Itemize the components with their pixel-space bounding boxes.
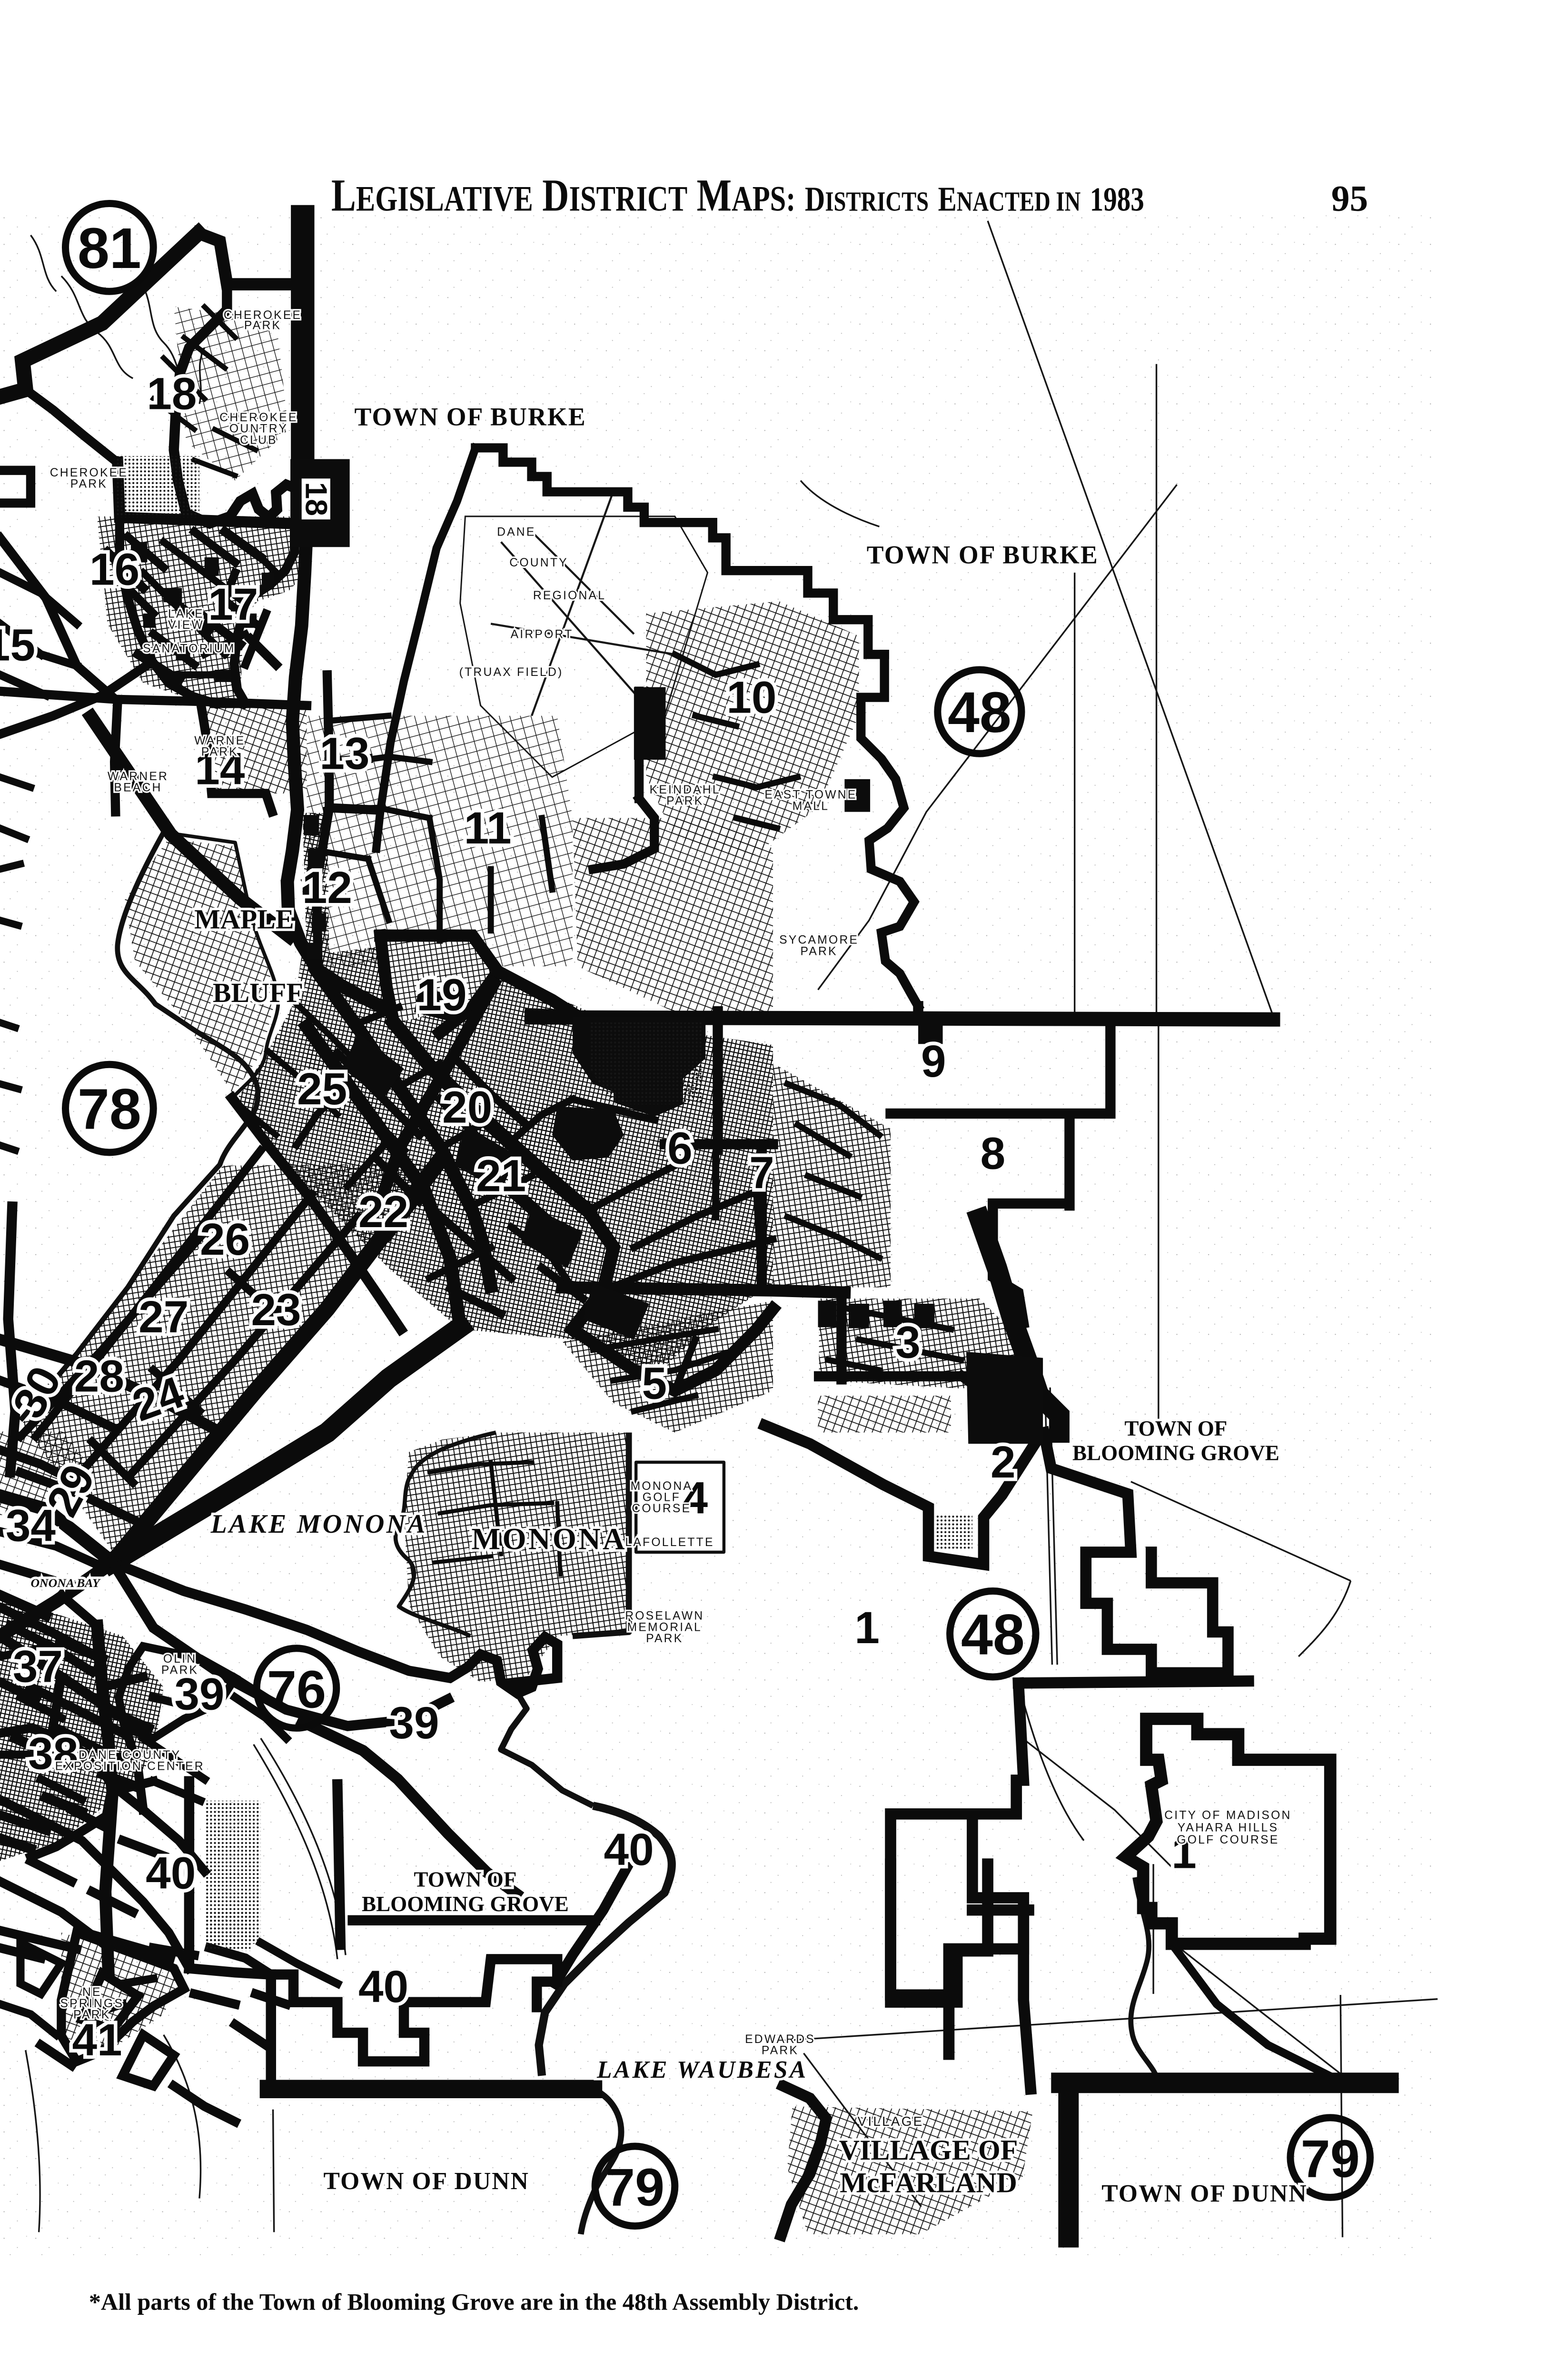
svg-text:TOWN OF BURKE: TOWN OF BURKE xyxy=(867,541,1099,569)
svg-text:MALL: MALL xyxy=(793,800,829,813)
svg-text:PARK: PARK xyxy=(201,745,238,758)
svg-text:17: 17 xyxy=(208,579,258,630)
svg-text:PARK: PARK xyxy=(244,319,281,332)
svg-text:15: 15 xyxy=(0,620,35,671)
svg-text:27: 27 xyxy=(139,1292,188,1342)
svg-text:GOLF COURSE: GOLF COURSE xyxy=(1177,1834,1279,1846)
svg-text:BLOOMING GROVE: BLOOMING GROVE xyxy=(362,1892,569,1916)
svg-text:12: 12 xyxy=(302,863,352,913)
svg-text:34: 34 xyxy=(6,1500,56,1551)
svg-text:25: 25 xyxy=(297,1064,347,1114)
svg-text:LAKE WAUBESA: LAKE WAUBESA xyxy=(596,2056,808,2083)
svg-text:2: 2 xyxy=(991,1437,1016,1487)
svg-text:19: 19 xyxy=(416,970,466,1020)
svg-text:VIEW: VIEW xyxy=(168,619,204,632)
svg-text:PARK: PARK xyxy=(70,478,108,491)
svg-text:28: 28 xyxy=(74,1351,124,1402)
svg-text:VILLAGE OF: VILLAGE OF xyxy=(839,2134,1018,2166)
svg-text:9: 9 xyxy=(921,1036,946,1087)
svg-text:TOWN OF DUNN: TOWN OF DUNN xyxy=(324,2168,529,2195)
svg-text:PARK: PARK xyxy=(801,945,838,958)
svg-text:LEGISLATIVE DISTRICT MAPS: DIS: LEGISLATIVE DISTRICT MAPS: DISTRICTS ENA… xyxy=(331,170,1144,221)
svg-text:3: 3 xyxy=(895,1318,921,1368)
svg-text:BLUFF: BLUFF xyxy=(213,977,303,1008)
svg-text:23: 23 xyxy=(251,1285,301,1335)
svg-text:26: 26 xyxy=(200,1214,250,1265)
svg-text:79: 79 xyxy=(605,2158,664,2217)
svg-text:11: 11 xyxy=(464,803,512,853)
svg-text:EXPOSITION CENTER: EXPOSITION CENTER xyxy=(55,1760,205,1773)
svg-text:81: 81 xyxy=(78,217,141,280)
svg-text:40: 40 xyxy=(146,1848,196,1899)
svg-text:AIRPORT: AIRPORT xyxy=(511,628,574,641)
svg-text:BEACH: BEACH xyxy=(114,782,162,794)
svg-text:ONONA BAY: ONONA BAY xyxy=(30,1576,101,1590)
svg-text:18: 18 xyxy=(147,368,197,419)
svg-text:LAKE MONONA: LAKE MONONA xyxy=(210,1509,427,1539)
svg-text:CLUB: CLUB xyxy=(240,434,277,446)
svg-text:76: 76 xyxy=(267,1659,326,1719)
svg-text:TOWN OF: TOWN OF xyxy=(1124,1417,1227,1440)
svg-text:5: 5 xyxy=(642,1359,667,1409)
svg-text:BLOOMING GROVE: BLOOMING GROVE xyxy=(1072,1441,1279,1465)
svg-text:16: 16 xyxy=(89,545,139,595)
svg-text:PARK: PARK xyxy=(666,795,704,808)
svg-text:8: 8 xyxy=(981,1128,1006,1179)
svg-text:79: 79 xyxy=(1301,2129,1360,2188)
svg-text:CITY OF MADISON: CITY OF MADISON xyxy=(1164,1809,1291,1822)
svg-text:PARK: PARK xyxy=(161,1664,198,1677)
svg-text:40: 40 xyxy=(358,1962,408,2012)
svg-text:18: 18 xyxy=(299,482,333,516)
svg-text:95: 95 xyxy=(1331,178,1368,219)
svg-text:13: 13 xyxy=(319,728,369,779)
svg-text:COUNTY: COUNTY xyxy=(509,556,568,569)
svg-text:MAPLE: MAPLE xyxy=(194,904,294,935)
svg-text:PARK: PARK xyxy=(762,2044,799,2057)
svg-text:6: 6 xyxy=(667,1123,693,1174)
svg-text:TOWN OF BURKE: TOWN OF BURKE xyxy=(354,403,586,431)
svg-text:37: 37 xyxy=(13,1642,63,1692)
svg-text:TOWN OF: TOWN OF xyxy=(414,1867,516,1891)
svg-text:48: 48 xyxy=(948,681,1011,744)
svg-text:SANATORIUM: SANATORIUM xyxy=(143,643,236,655)
svg-text:7: 7 xyxy=(749,1148,774,1198)
svg-text:39: 39 xyxy=(389,1698,439,1748)
svg-text:(TRUAX FIELD): (TRUAX FIELD) xyxy=(459,666,564,679)
svg-text:YAHARA HILLS: YAHARA HILLS xyxy=(1178,1821,1278,1834)
svg-text:REGIONAL: REGIONAL xyxy=(533,589,606,602)
svg-text:10: 10 xyxy=(726,672,776,723)
svg-text:DANE: DANE xyxy=(497,526,535,539)
svg-text:McFARLAND: McFARLAND xyxy=(840,2167,1017,2199)
svg-text:20: 20 xyxy=(442,1082,492,1133)
svg-text:78: 78 xyxy=(78,1078,141,1141)
svg-text:VILLAGE: VILLAGE xyxy=(858,2114,924,2129)
svg-text:40: 40 xyxy=(604,1825,654,1875)
svg-text:41: 41 xyxy=(72,2015,122,2065)
svg-text:MONONA: MONONA xyxy=(471,1522,626,1556)
svg-text:PARK: PARK xyxy=(646,1632,683,1645)
svg-text:1: 1 xyxy=(854,1603,880,1653)
svg-text:22: 22 xyxy=(358,1187,408,1237)
svg-text:48: 48 xyxy=(961,1603,1025,1667)
svg-text:39: 39 xyxy=(174,1669,224,1720)
svg-text:*All parts of the Town of Bloo: *All parts of the Town of Blooming Grove… xyxy=(89,2289,859,2315)
svg-text:COURSE: COURSE xyxy=(632,1502,691,1515)
svg-text:21: 21 xyxy=(476,1151,526,1201)
svg-text:TOWN OF DUNN: TOWN OF DUNN xyxy=(1101,2180,1307,2207)
svg-text:PARK: PARK xyxy=(73,2008,110,2021)
svg-text:LAFOLLETTE: LAFOLLETTE xyxy=(625,1536,714,1549)
